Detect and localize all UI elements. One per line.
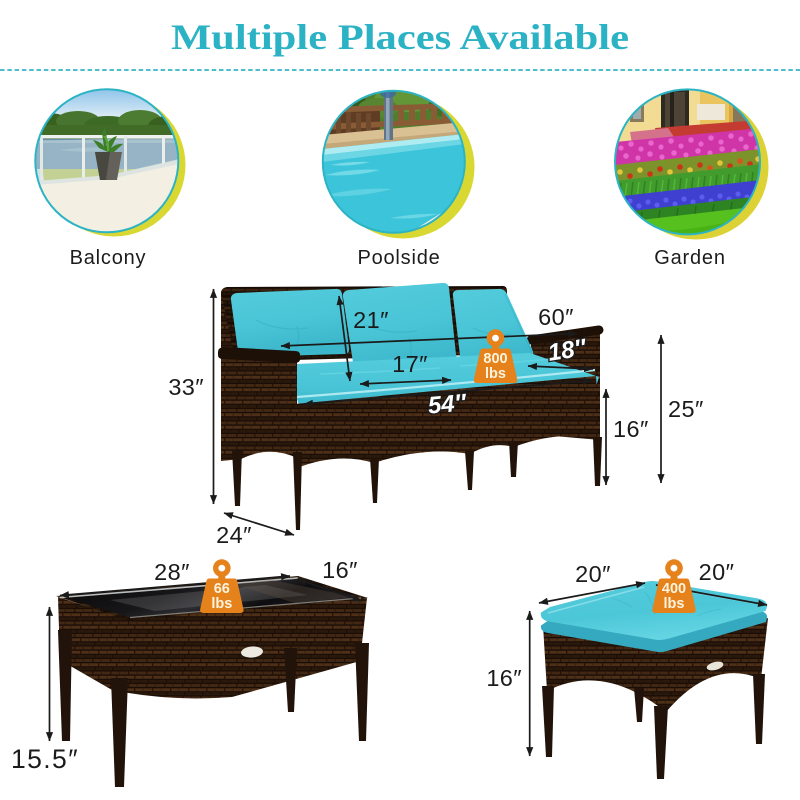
svg-text:16″: 16″ [486, 665, 522, 691]
svg-text:Garden: Garden [654, 247, 726, 269]
svg-text:800: 800 [483, 351, 507, 367]
svg-text:54″: 54″ [427, 389, 469, 419]
svg-text:lbs: lbs [485, 366, 506, 382]
svg-text:20″: 20″ [575, 561, 611, 587]
svg-text:16″: 16″ [613, 416, 649, 442]
svg-text:400: 400 [662, 581, 686, 597]
svg-text:24″: 24″ [216, 522, 252, 548]
svg-text:Poolside: Poolside [357, 247, 440, 269]
svg-text:lbs: lbs [664, 596, 685, 612]
svg-text:17″: 17″ [392, 351, 428, 377]
svg-text:15.5″: 15.5″ [11, 744, 79, 774]
svg-text:25″: 25″ [668, 396, 704, 422]
svg-text:60″: 60″ [538, 304, 574, 330]
svg-text:20″: 20″ [699, 559, 735, 585]
svg-text:Balcony: Balcony [70, 247, 147, 269]
svg-text:33″: 33″ [168, 374, 204, 400]
svg-text:lbs: lbs [211, 596, 232, 612]
svg-text:21″: 21″ [353, 307, 389, 333]
svg-text:16″: 16″ [322, 557, 358, 583]
svg-text:Multiple Places Available: Multiple Places Available [171, 17, 629, 57]
svg-text:28″: 28″ [154, 559, 190, 585]
svg-text:66: 66 [214, 581, 230, 597]
